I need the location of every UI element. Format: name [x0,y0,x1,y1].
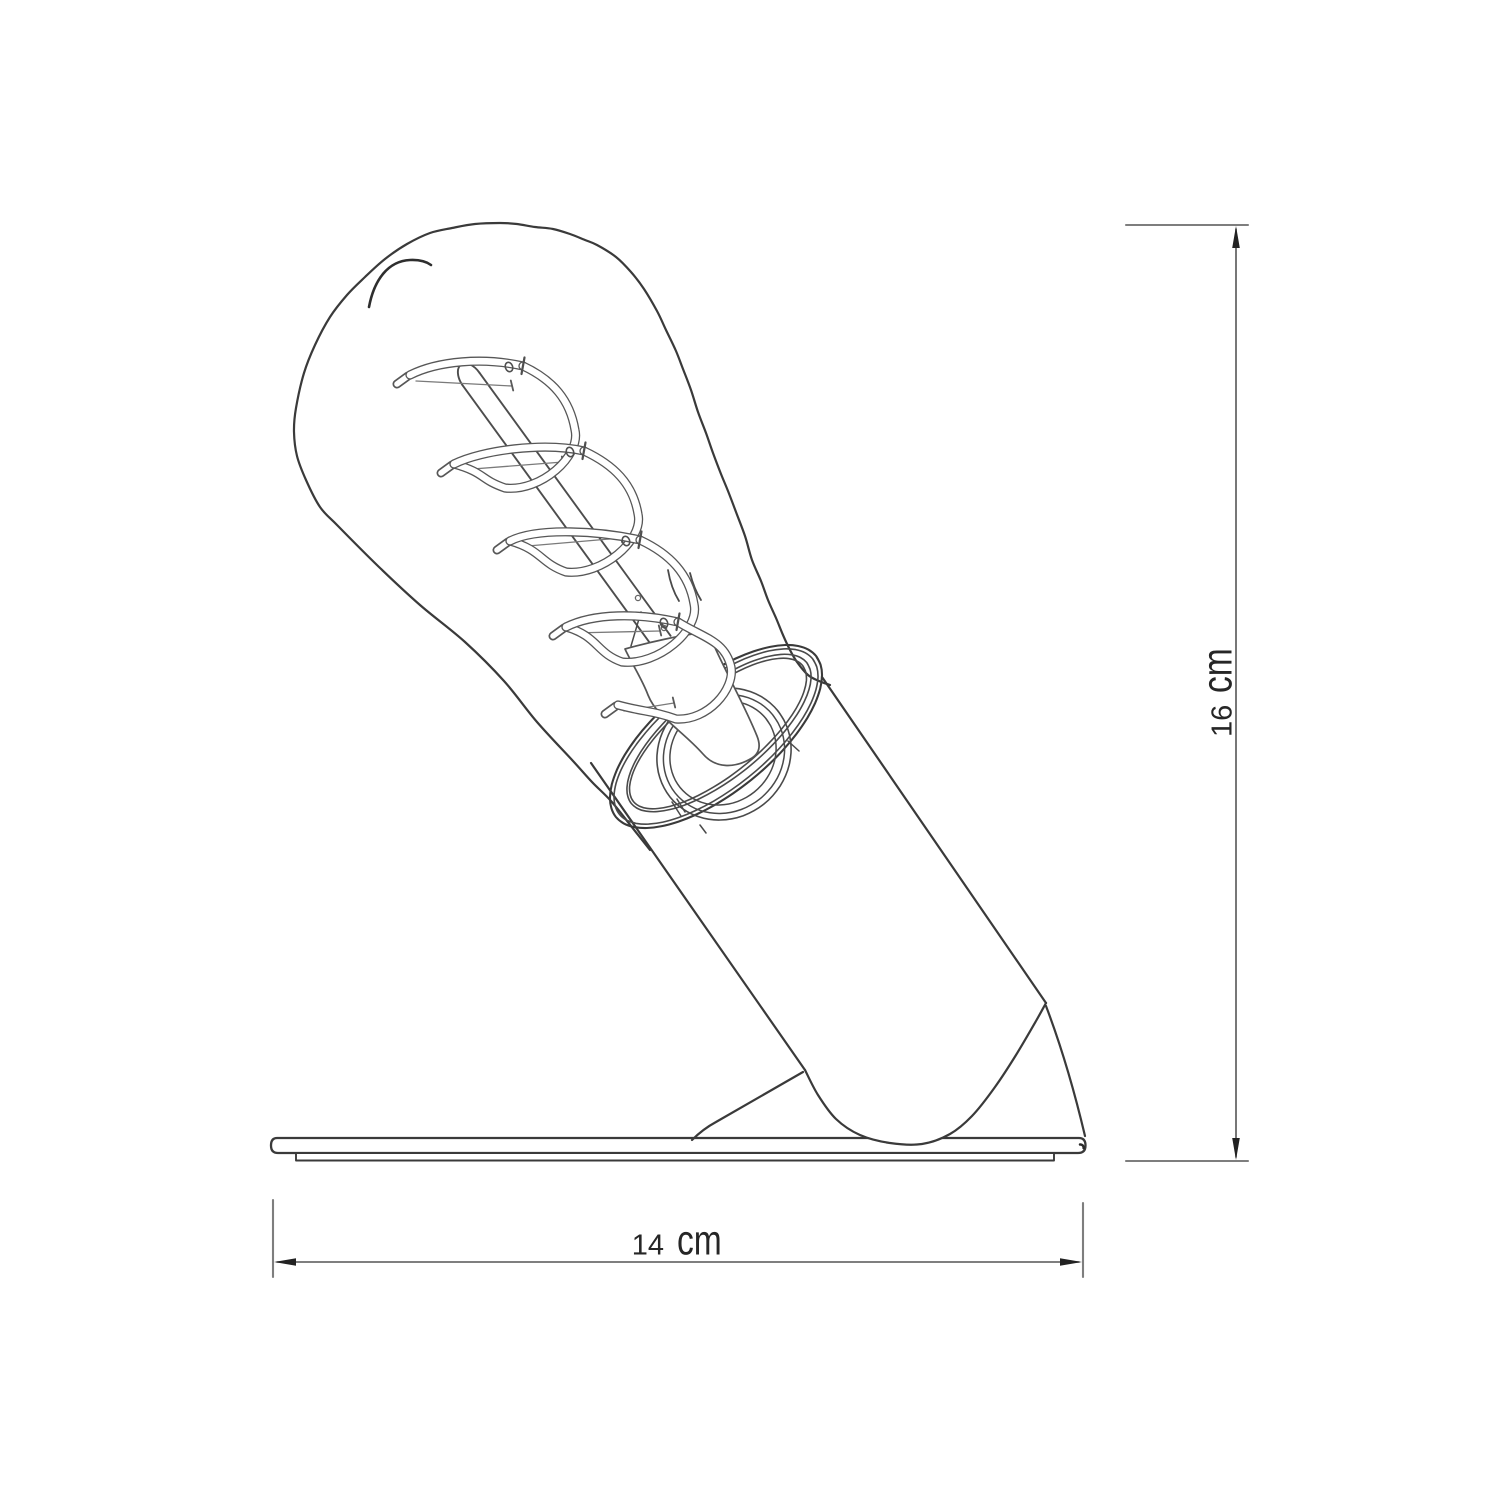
svg-text:16: 16 [1207,705,1239,737]
svg-text:cm: cm [1194,648,1241,693]
svg-text:14: 14 [632,1230,664,1262]
svg-text:cm: cm [677,1217,722,1264]
